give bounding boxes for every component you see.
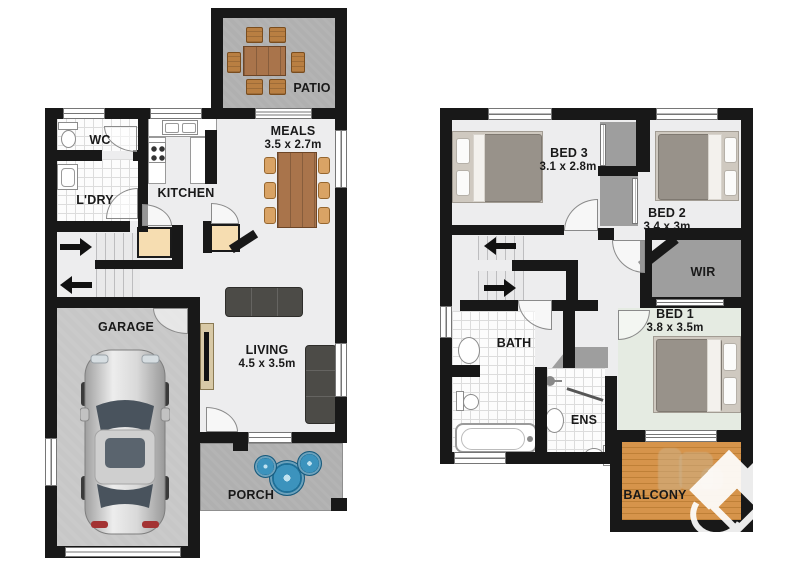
shower-arm: [554, 380, 562, 382]
wall: [563, 311, 575, 368]
watermark-logo: [685, 445, 800, 545]
room-dims-bed3: 3.1 x 2.8m: [540, 161, 597, 173]
wall: [636, 120, 650, 172]
robe-sliding-door: [632, 178, 638, 224]
window: [440, 306, 452, 338]
wall: [566, 271, 578, 311]
room-dims-bed2: 3.4 x 3m: [644, 221, 691, 233]
toilet: [463, 394, 479, 410]
upper-floor-plan: BED 3 3.1 x 2.8m BED 2 3.4 x 3m WIR BED …: [0, 0, 800, 566]
wall: [535, 367, 547, 452]
window: [454, 452, 506, 464]
wall: [598, 166, 638, 176]
stairs-down-arrow-icon: [484, 237, 516, 255]
room-label-bath: BATH: [497, 336, 532, 350]
bed: [655, 131, 739, 201]
bathtub: [455, 423, 537, 453]
room-label-bed3: BED 3: [550, 146, 588, 160]
window: [488, 108, 552, 120]
wall: [440, 365, 480, 377]
room-label-wir: WIR: [691, 265, 716, 279]
room-label-bed2: BED 2: [648, 206, 686, 220]
room-label-bed1: BED 1: [656, 307, 694, 321]
ensuite-sink: [545, 408, 564, 433]
bed: [452, 131, 543, 203]
wall: [605, 376, 617, 452]
window: [656, 108, 718, 120]
room-label-balcony: BALCONY: [623, 488, 686, 502]
sliding-door: [645, 430, 717, 442]
wall: [460, 300, 518, 311]
robe-sliding-door: [656, 299, 724, 306]
robe-sliding-door: [600, 124, 606, 166]
wall: [598, 228, 614, 240]
stairs-up-arrow-icon: [484, 279, 516, 297]
floor-plan-image: PATIO WC L'DRY KITCHEN MEALS 3.5 x 2.7m …: [0, 0, 800, 566]
wall: [440, 108, 452, 464]
wall: [440, 225, 564, 235]
room-dims-bed1: 3.8 x 3.5m: [647, 322, 704, 334]
wall: [512, 260, 578, 271]
wall: [610, 442, 622, 532]
bathroom-sink: [458, 337, 480, 364]
bed: [653, 336, 741, 413]
room-label-ens: ENS: [571, 413, 597, 427]
